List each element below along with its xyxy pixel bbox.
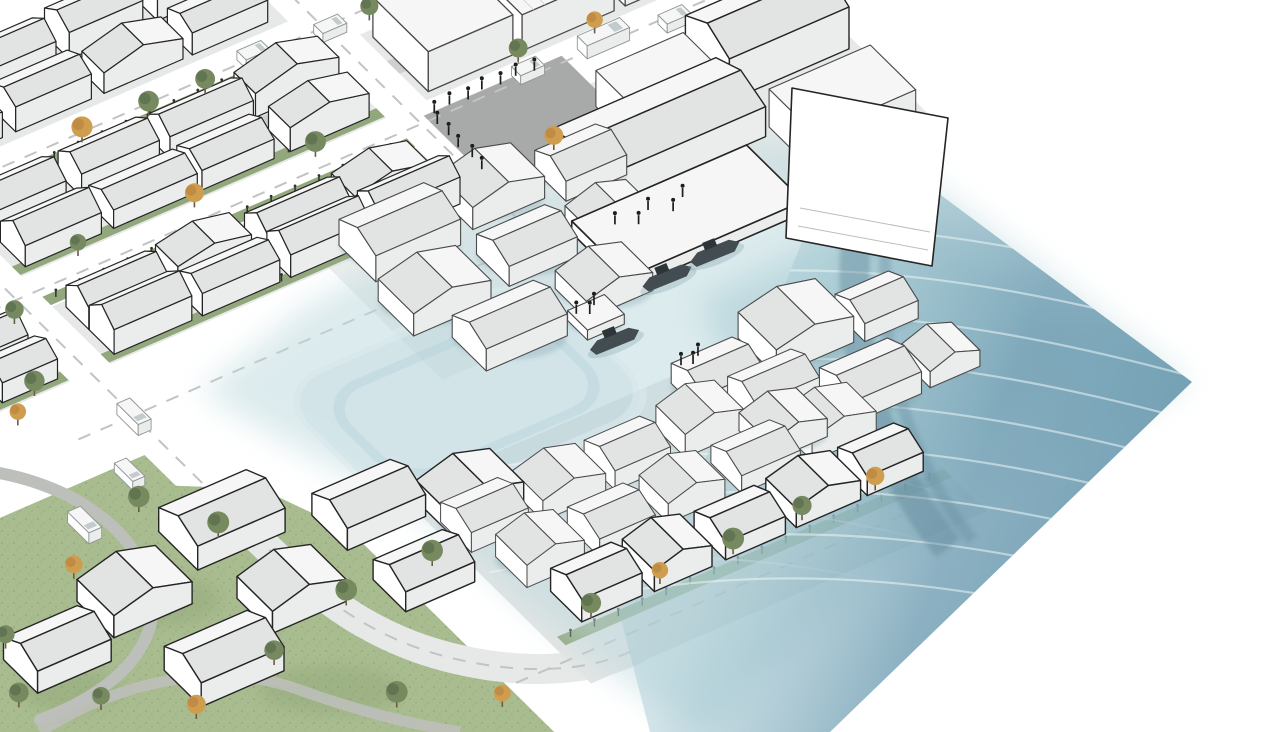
tilted-building xyxy=(786,88,948,266)
grass-shade xyxy=(260,666,400,714)
illustration-canvas: Axonometric illustration of a waterfront… xyxy=(0,0,1280,732)
flood-axonometric-illustration: Axonometric illustration of a waterfront… xyxy=(0,0,1280,732)
